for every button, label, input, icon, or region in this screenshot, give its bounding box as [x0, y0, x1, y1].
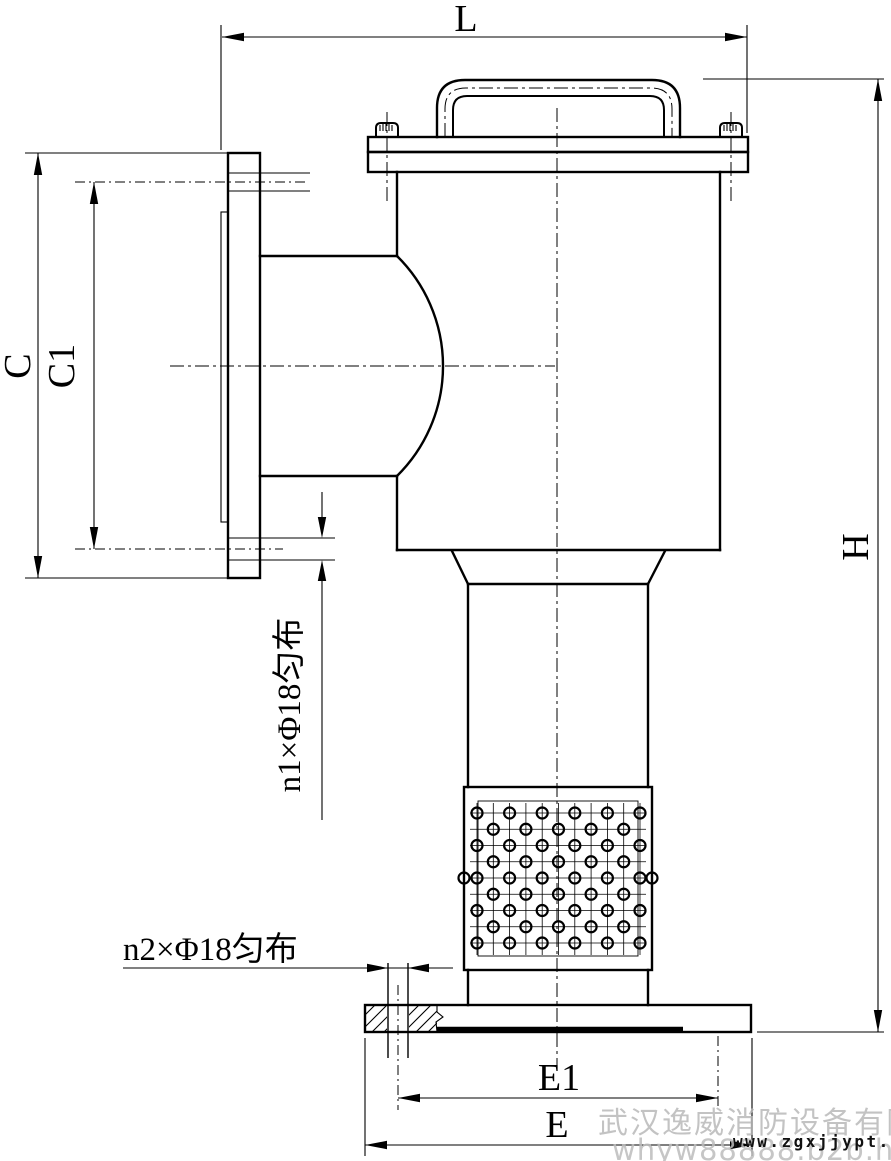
arrowhead — [34, 556, 42, 578]
dimension-E1: E1 — [398, 1057, 718, 1102]
dim-label-C: C — [0, 353, 39, 378]
arrowhead — [318, 517, 326, 538]
watermarks: 武汉逸威消防设备有限公司 whyw88888.b2b.hc360.com www… — [598, 1106, 891, 1161]
bolt-knurl-lines — [724, 124, 736, 131]
dimension-C1: C1 — [41, 182, 98, 549]
upper-riser-walls — [468, 584, 648, 787]
arrowhead — [318, 560, 326, 581]
bottom-cone-taper — [452, 551, 665, 584]
handle-outer — [437, 80, 680, 137]
dim-label-L: L — [454, 0, 477, 40]
arrowhead — [696, 1094, 718, 1102]
arrowhead — [367, 964, 388, 972]
annotation-n2-holes: n2×Φ18匀布 — [123, 931, 453, 972]
dim-label-H: H — [835, 533, 877, 560]
strainer-section — [459, 787, 658, 970]
arrowhead — [398, 1094, 420, 1102]
arrowhead — [90, 527, 98, 549]
arrowhead — [365, 1141, 387, 1149]
arrowhead — [874, 1010, 882, 1032]
dim-label-E1: E1 — [538, 1057, 580, 1099]
dim-label-C1: C1 — [41, 344, 83, 388]
arrowhead — [34, 153, 42, 175]
cover-plate — [368, 137, 748, 152]
lifting-handle — [437, 80, 680, 137]
vessel-body — [397, 172, 720, 584]
riser-pipe — [468, 584, 648, 1005]
arrowhead — [725, 33, 747, 41]
arrowhead — [408, 964, 429, 972]
dimension-H: H — [703, 79, 884, 1032]
dim-label-E: E — [545, 1104, 568, 1146]
bolt-knurl-lines — [380, 124, 392, 131]
watermark-site-url: www.zgxjjypt.com — [733, 1132, 891, 1151]
engineering-drawing: L C C1 H E1 E — [0, 0, 891, 1161]
arrowhead — [90, 182, 98, 204]
body-flange-plate — [368, 152, 748, 172]
arrowhead — [874, 79, 882, 101]
annotation-n1-holes: n1×Φ18匀布 — [271, 492, 326, 820]
lower-riser-walls — [468, 970, 648, 1005]
arrowhead — [222, 33, 244, 41]
handle-inner — [453, 96, 664, 137]
strainer-hole-pattern — [459, 803, 658, 955]
section-hatch-left — [336, 1005, 411, 1032]
n2-label: n2×Φ18匀布 — [123, 931, 298, 968]
cover-flange — [368, 123, 748, 172]
dimension-L: L — [221, 0, 747, 150]
n1-label: n1×Φ18匀布 — [271, 618, 308, 793]
